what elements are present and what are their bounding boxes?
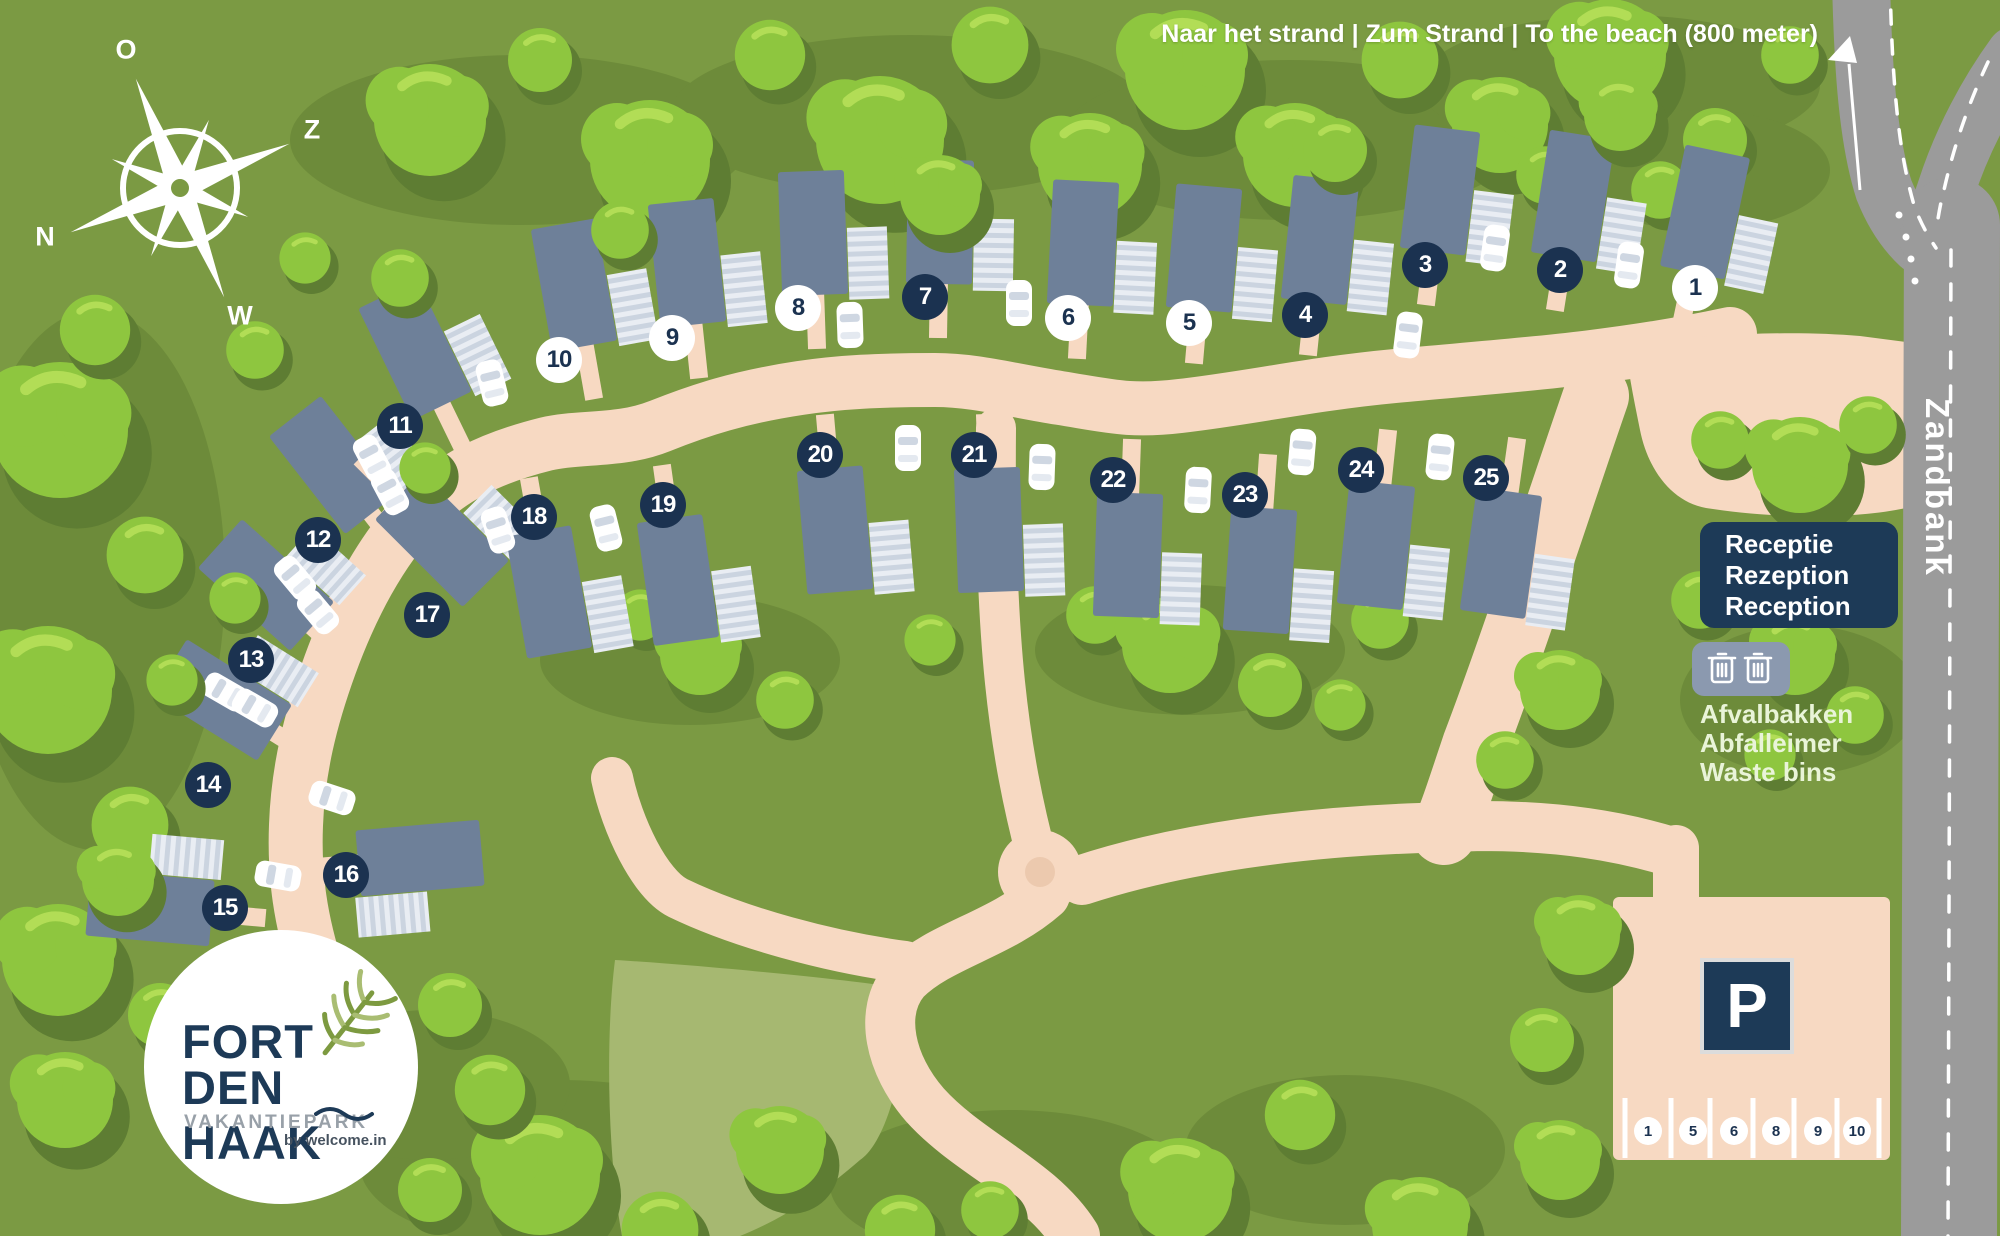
lodge-deck [1232,247,1278,322]
parking-letter: P [1726,971,1767,1042]
lodge-roof [1166,183,1243,312]
tree [1514,650,1614,748]
tree [279,232,338,294]
reception-sign: Receptie Rezeption Reception [1700,522,1898,628]
lodge-marker-24: 24 [1338,447,1384,493]
lodge-marker-19: 19 [640,482,686,528]
lodge-deck [1347,240,1394,316]
lodge-marker-10: 10 [536,337,582,383]
parking-spot-8: 8 [1762,1117,1790,1145]
lodge-roof [506,525,593,659]
lodge-deck [1113,241,1157,315]
waste-line-en: Waste bins [1700,758,1853,787]
lodge-roof [355,820,484,897]
tree [1314,679,1373,741]
lodge-marker-3: 3 [1402,242,1448,288]
road-name-label: Zandbank [1918,398,1956,578]
waste-bins-label: Afvalbakken Abfalleimer Waste bins [1700,700,1853,787]
lodge-roof [1337,480,1416,610]
car-icon [1425,433,1456,481]
compass-rose-icon [26,34,333,341]
lodge-marker-17: 17 [404,592,450,638]
lodge-roof [797,465,874,594]
lodge-marker-20: 20 [797,432,843,478]
lodge-marker-5: 5 [1166,300,1212,346]
lodge-marker-18: 18 [511,494,557,540]
car-icon [836,302,864,349]
logo-wave-icon [316,1109,372,1119]
lodge-deck [1289,568,1334,643]
park-map: Naar het strand | Zum Strand | To the be… [0,0,2000,1236]
lodge-marker-16: 16 [323,852,369,898]
parking-spot-5: 5 [1679,1117,1707,1145]
lodge-roof [1047,179,1119,306]
reception-line-en: Reception [1725,591,1898,622]
lodge-roof [1093,492,1163,618]
tree [1514,1120,1614,1218]
lodge-marker-14: 14 [185,762,231,808]
tree [10,1052,130,1170]
road-junction-center [1025,857,1055,887]
parking-spot-10: 10 [1843,1117,1871,1145]
park-logo: FORT DEN HAAK VAKANTIEPARK by welcome.in [144,930,418,1204]
car-icon [588,503,624,554]
tree [904,614,963,676]
lodge-marker-9: 9 [649,315,695,361]
lodge-marker-7: 7 [902,274,948,320]
parking-sign: P [1700,958,1794,1054]
lodge-deck [1023,523,1065,596]
lodge-marker-4: 4 [1282,292,1328,338]
car-icon [1006,280,1032,326]
car-icon [1028,444,1056,491]
car-icon [1184,466,1212,513]
lodge-roof [1223,506,1297,634]
lodge-marker-15: 15 [202,885,248,931]
waste-bins-sign [1692,642,1790,696]
lodge-deck [1160,552,1202,625]
lodge-marker-1: 1 [1672,265,1718,311]
lodge-marker-21: 21 [951,432,997,478]
car-icon [1287,428,1317,476]
lodge-marker-8: 8 [775,285,821,331]
lodge-marker-25: 25 [1463,455,1509,501]
parking-spot-6: 6 [1720,1117,1748,1145]
lodge [496,465,633,665]
trash-bin-icon [1706,650,1776,688]
tree [1510,1008,1584,1085]
lodge-deck [869,520,915,595]
compass-south-label: Z [304,115,321,146]
waste-line-nl: Afvalbakken [1700,700,1853,729]
parking-spot-1: 1 [1634,1117,1662,1145]
lodge-marker-6: 6 [1045,295,1091,341]
lodge-marker-11: 11 [377,403,423,449]
compass-north-label: N [35,222,55,253]
lodge-roof [954,467,1024,593]
reception-line-de: Rezeption [1725,560,1898,591]
compass-west-label: W [227,301,252,332]
lodge-marker-12: 12 [295,517,341,563]
lodge-marker-23: 23 [1222,472,1268,518]
lodge-marker-13: 13 [228,637,274,683]
car-icon [895,425,921,471]
parking-spot-9: 9 [1804,1117,1832,1145]
waste-line-de: Abfalleimer [1700,729,1853,758]
lodge-deck [1403,545,1450,621]
lodge-roof [778,170,848,296]
compass-east-label: O [115,35,136,66]
logo-branch-icon [144,930,418,1204]
reception-line-nl: Receptie [1725,529,1898,560]
lodge-deck [847,226,889,299]
lodge-roof [648,198,727,328]
lodge-deck [720,251,767,327]
lodge-marker-2: 2 [1537,247,1583,293]
beach-direction-label: Naar het strand | Zum Strand | To the be… [1161,20,1818,49]
lodge-marker-22: 22 [1090,457,1136,503]
tree [226,321,293,390]
